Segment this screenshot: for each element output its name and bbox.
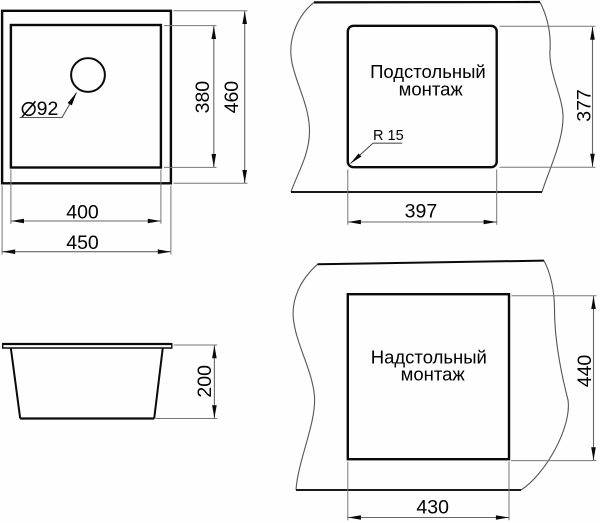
svg-text:400: 400 — [66, 201, 99, 223]
svg-text:397: 397 — [405, 201, 438, 223]
svg-text:R 15: R 15 — [373, 128, 404, 144]
svg-text:монтаж: монтаж — [401, 364, 466, 385]
svg-text:200: 200 — [194, 365, 216, 398]
svg-text:монтаж: монтаж — [399, 79, 464, 100]
svg-text:377: 377 — [574, 89, 596, 122]
svg-text:460: 460 — [221, 81, 243, 114]
svg-text:450: 450 — [66, 232, 99, 254]
svg-text:92: 92 — [37, 98, 59, 120]
svg-text:440: 440 — [574, 355, 596, 388]
svg-text:430: 430 — [416, 497, 449, 519]
svg-text:380: 380 — [192, 81, 214, 114]
